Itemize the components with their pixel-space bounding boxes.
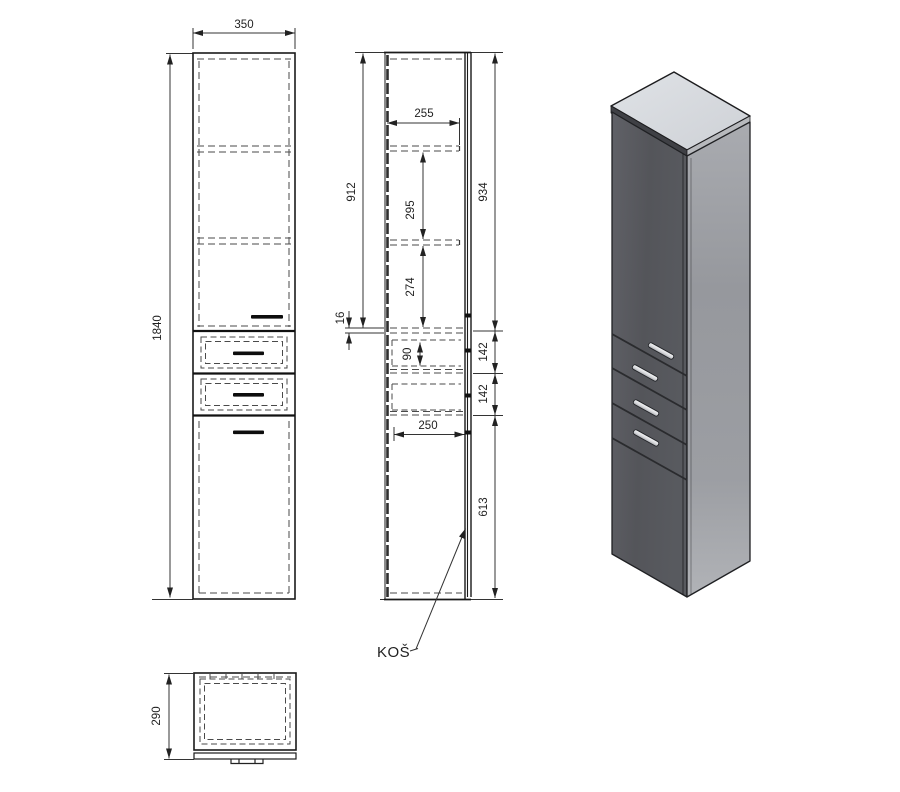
cabinet-3d-render (611, 72, 750, 597)
dim-295: 295 (405, 153, 423, 240)
basket-callout: KOŠ (377, 529, 466, 662)
dim-chain-right: 934 142 142 613 (473, 54, 503, 599)
side-dashed-details (390, 59, 463, 593)
dim-label-250: 250 (418, 420, 437, 432)
dim-label-16: 16 (335, 312, 347, 325)
front-view: 1840 350 (152, 19, 295, 600)
dim-label-142-1: 142 (478, 342, 490, 361)
dim-label-1840: 1840 (152, 315, 164, 341)
dim-label-295: 295 (405, 200, 417, 219)
dim-label-142-2: 142 (478, 384, 490, 403)
dim-label-613: 613 (478, 497, 490, 516)
dim-label-255: 255 (414, 108, 433, 120)
dim-height-1840: 1840 (152, 55, 170, 598)
dim-label-350: 350 (234, 19, 253, 31)
dim-16: 16 (335, 311, 384, 350)
dim-width-350: 350 (193, 19, 295, 49)
drawing-canvas: 1840 350 290 (0, 0, 900, 792)
lower-door-handle (233, 431, 264, 435)
dim-90: 90 (402, 343, 420, 366)
dim-label-290: 290 (151, 706, 163, 725)
drawer1-handle (233, 352, 264, 356)
upper-door-handle (251, 315, 283, 319)
dim-274: 274 (405, 246, 423, 327)
render-side-face (687, 122, 750, 597)
cabinet-technical-drawing: 1840 350 290 (0, 0, 900, 792)
top-view: 290 (151, 673, 296, 764)
side-view: 912 255 295 274 16 90 250 (335, 52, 503, 661)
basket-label: KOŠ (377, 644, 410, 661)
dim-250: 250 (394, 420, 465, 441)
dim-255: 255 (387, 108, 460, 145)
top-view-outline (194, 673, 296, 750)
dim-label-912: 912 (346, 182, 358, 201)
top-view-door-edge (194, 753, 296, 759)
dim-label-90: 90 (402, 348, 414, 361)
dim-912: 912 (346, 54, 363, 328)
dim-depth-290: 290 (151, 674, 194, 760)
dim-label-934: 934 (478, 182, 490, 202)
top-view-handle (231, 759, 263, 764)
drawer2-handle (233, 393, 264, 397)
dim-label-274: 274 (405, 277, 417, 297)
